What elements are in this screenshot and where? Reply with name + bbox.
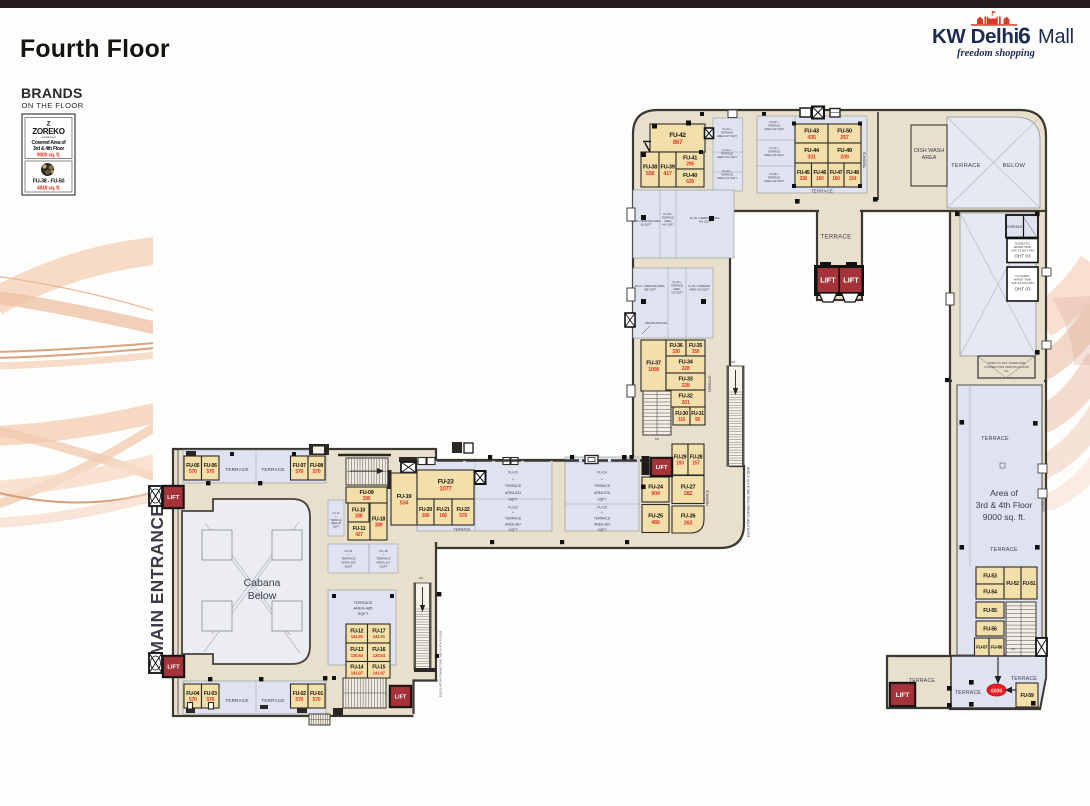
svg-text:570: 570 bbox=[189, 469, 197, 475]
svg-text:FU-41 +: FU-41 + bbox=[722, 148, 732, 152]
svg-text:331: 331 bbox=[807, 155, 816, 161]
svg-text:FU-43: FU-43 bbox=[804, 128, 820, 134]
svg-text:FU-45: FU-45 bbox=[797, 170, 810, 176]
svg-text:ZOREKO: ZOREKO bbox=[32, 127, 65, 136]
svg-text:188: 188 bbox=[355, 514, 363, 520]
svg-text:904: 904 bbox=[651, 491, 661, 497]
svg-text:FU-40: FU-40 bbox=[683, 173, 697, 179]
svg-text:FU-44: FU-44 bbox=[804, 148, 820, 154]
svg-text:LIFT: LIFT bbox=[656, 465, 668, 471]
svg-text:Cabana: Cabana bbox=[244, 577, 281, 589]
svg-text:DN: DN bbox=[419, 576, 423, 580]
svg-text:AREA-367: AREA-367 bbox=[505, 522, 521, 526]
svg-text:558: 558 bbox=[646, 171, 655, 177]
svg-text:TERRACE: TERRACE bbox=[863, 151, 867, 168]
svg-text:FU-29: FU-29 bbox=[674, 454, 687, 460]
svg-text:FU-42: FU-42 bbox=[669, 132, 686, 139]
svg-text:6006: 6006 bbox=[991, 688, 1002, 694]
svg-text:TERRACE: TERRACE bbox=[811, 189, 833, 194]
svg-text:9000 sq. ft.: 9000 sq. ft. bbox=[983, 512, 1026, 522]
svg-text:FU-07: FU-07 bbox=[293, 463, 306, 469]
svg-text:4818 sq. ft.: 4818 sq. ft. bbox=[37, 186, 61, 192]
svg-text:TERRACE: TERRACE bbox=[594, 484, 611, 488]
svg-text:TERRACE: TERRACE bbox=[721, 173, 734, 177]
svg-text:FU-04: FU-04 bbox=[186, 691, 199, 697]
svg-text:DISH WASH: DISH WASH bbox=[914, 148, 944, 154]
svg-text:FU-54: FU-54 bbox=[983, 590, 997, 596]
svg-text:TERRACE: TERRACE bbox=[261, 467, 284, 472]
svg-text:9000 sq. ft.: 9000 sq. ft. bbox=[37, 153, 61, 159]
svg-text:867: 867 bbox=[673, 139, 683, 146]
svg-text:3rd & 4th Floor: 3rd & 4th Floor bbox=[33, 146, 64, 152]
svg-text:358 SQFT: 358 SQFT bbox=[644, 288, 656, 292]
svg-text:ABOVE PROFILE: ABOVE PROFILE bbox=[645, 321, 668, 325]
svg-text:FU-44 +: FU-44 + bbox=[769, 146, 779, 150]
svg-text:TERRACE: TERRACE bbox=[821, 235, 852, 241]
svg-text:166: 166 bbox=[439, 513, 447, 519]
svg-text:FU-03: FU-03 bbox=[204, 691, 217, 697]
svg-text:FU-24: FU-24 bbox=[597, 471, 607, 475]
svg-text:TERRACE: TERRACE bbox=[1006, 225, 1023, 229]
svg-text:296: 296 bbox=[363, 496, 371, 502]
svg-text:FU-06: FU-06 bbox=[204, 463, 217, 469]
svg-text:570: 570 bbox=[313, 697, 321, 703]
svg-text:TERRACE: TERRACE bbox=[708, 375, 712, 393]
svg-text:AREA-264: AREA-264 bbox=[594, 522, 610, 526]
svg-text:FU-40 +: FU-40 + bbox=[722, 169, 732, 173]
svg-text:141.97: 141.97 bbox=[351, 670, 364, 675]
svg-text:441 SQFT: 441 SQFT bbox=[662, 224, 674, 227]
svg-text:228: 228 bbox=[681, 366, 689, 372]
svg-text:Fourth Floor: Fourth Floor bbox=[20, 36, 170, 63]
svg-text:FU-33: FU-33 bbox=[678, 376, 692, 382]
svg-text:FU-57: FU-57 bbox=[976, 645, 988, 650]
svg-text:TERRACE: TERRACE bbox=[225, 698, 248, 703]
svg-text:LIFT: LIFT bbox=[167, 665, 180, 671]
svg-text:116: 116 bbox=[678, 417, 686, 423]
svg-text:228: 228 bbox=[681, 383, 689, 389]
svg-text:LIFT: LIFT bbox=[820, 276, 836, 285]
svg-text:TERRACE: TERRACE bbox=[453, 528, 471, 532]
svg-text:570: 570 bbox=[313, 469, 321, 475]
svg-text:LIFT: LIFT bbox=[843, 276, 859, 285]
svg-text:201: 201 bbox=[681, 400, 689, 406]
svg-text:TERRACE: TERRACE bbox=[261, 698, 284, 703]
svg-text:166: 166 bbox=[422, 513, 430, 519]
svg-text:SQFT: SQFT bbox=[345, 564, 353, 568]
svg-text:FU-38 - FU-50: FU-38 - FU-50 bbox=[33, 179, 65, 185]
svg-text:ON THE FLOOR: ON THE FLOOR bbox=[22, 101, 84, 110]
svg-text:FU-40 +TERRACE AREA-: FU-40 +TERRACE AREA- bbox=[690, 216, 720, 220]
svg-text:570: 570 bbox=[295, 697, 303, 703]
svg-text:FU-35 +TERRACE: FU-35 +TERRACE bbox=[688, 284, 710, 288]
svg-text:TERRACE: TERRACE bbox=[353, 600, 372, 605]
svg-text:FU-41: FU-41 bbox=[683, 155, 697, 161]
svg-text:FU-43 +: FU-43 + bbox=[769, 120, 779, 124]
svg-text:FU-34: FU-34 bbox=[678, 359, 693, 365]
svg-text:141.91: 141.91 bbox=[351, 634, 364, 639]
svg-text:FU-32: FU-32 bbox=[678, 393, 692, 399]
svg-text:154: 154 bbox=[849, 176, 857, 182]
svg-text:entertainment: entertainment bbox=[41, 136, 56, 139]
svg-text:157: 157 bbox=[692, 461, 700, 467]
svg-text:FU-22: FU-22 bbox=[508, 506, 518, 510]
svg-text:FU-10: FU-10 bbox=[352, 507, 365, 513]
svg-text:3rd & 4th Floor: 3rd & 4th Floor bbox=[976, 500, 1033, 510]
svg-text:Area of: Area of bbox=[990, 488, 1018, 498]
svg-text:TERRACE: TERRACE bbox=[505, 517, 522, 521]
svg-text:130.54: 130.54 bbox=[351, 653, 364, 658]
svg-text:TERRACE: TERRACE bbox=[768, 150, 781, 154]
svg-text:FU-23: FU-23 bbox=[438, 478, 455, 485]
svg-text:570: 570 bbox=[206, 469, 214, 475]
svg-text:FU-24: FU-24 bbox=[648, 484, 664, 490]
svg-text:427: 427 bbox=[355, 532, 363, 538]
svg-text:160: 160 bbox=[816, 176, 824, 182]
svg-text:FU-37: FU-37 bbox=[646, 360, 661, 366]
svg-text:LIFT: LIFT bbox=[167, 495, 180, 501]
svg-text:257: 257 bbox=[840, 135, 849, 141]
svg-text:LVL: LVL bbox=[1004, 369, 1009, 373]
svg-text:AREA-576: AREA-576 bbox=[594, 491, 610, 495]
svg-text:193: 193 bbox=[676, 461, 684, 467]
svg-text:FU-52: FU-52 bbox=[1006, 581, 1019, 587]
svg-text:336: 336 bbox=[800, 176, 808, 182]
svg-text:FU-18: FU-18 bbox=[372, 516, 385, 522]
svg-text:AREA-447 SQFT: AREA-447 SQFT bbox=[717, 134, 737, 138]
svg-text:OHT 03: OHT 03 bbox=[1015, 287, 1031, 292]
svg-text:FU-08: FU-08 bbox=[310, 463, 323, 469]
svg-text:330: 330 bbox=[672, 349, 680, 355]
svg-text:AREA-223 SQFT: AREA-223 SQFT bbox=[764, 127, 784, 131]
svg-text:Below: Below bbox=[248, 590, 277, 602]
svg-text:FU-37 +TERRACE AREA-: FU-37 +TERRACE AREA- bbox=[635, 284, 665, 288]
svg-text:AREA-485: AREA-485 bbox=[354, 606, 374, 611]
svg-text:AREA-533: AREA-533 bbox=[505, 491, 521, 495]
svg-text:FU-09: FU-09 bbox=[359, 490, 373, 496]
svg-text:FU-27: FU-27 bbox=[681, 484, 696, 490]
svg-text:FU-50: FU-50 bbox=[837, 128, 852, 134]
svg-text:130.54: 130.54 bbox=[373, 653, 386, 658]
svg-text:FU-48: FU-48 bbox=[846, 170, 859, 176]
svg-text:+: + bbox=[512, 477, 514, 481]
svg-text:FU-31: FU-31 bbox=[691, 411, 704, 417]
svg-text:DN: DN bbox=[731, 360, 735, 364]
svg-text:AREA-133 SQFT: AREA-133 SQFT bbox=[764, 179, 784, 183]
svg-text:TERRACE: TERRACE bbox=[594, 517, 611, 521]
svg-text:TERRACE: TERRACE bbox=[1011, 676, 1038, 682]
svg-text:FU-05: FU-05 bbox=[186, 463, 199, 469]
svg-text:FU-47: FU-47 bbox=[830, 170, 843, 176]
svg-text:+: + bbox=[601, 477, 603, 481]
svg-text:BRANDS: BRANDS bbox=[21, 85, 83, 101]
svg-text:Mall: Mall bbox=[1038, 26, 1074, 48]
svg-text:417: 417 bbox=[663, 171, 672, 177]
svg-text:FU-51: FU-51 bbox=[1023, 581, 1036, 587]
svg-text:141.97: 141.97 bbox=[373, 670, 386, 675]
svg-text:LIFT: LIFT bbox=[395, 694, 407, 700]
svg-text:FU-53: FU-53 bbox=[983, 574, 997, 580]
svg-text:FU-28: FU-28 bbox=[690, 454, 703, 460]
svg-text:AREA-219 SQFT: AREA-219 SQFT bbox=[689, 288, 709, 292]
svg-text:BELOW: BELOW bbox=[1003, 163, 1026, 169]
svg-text:SQFT: SQFT bbox=[333, 526, 340, 529]
svg-text:1008: 1008 bbox=[648, 367, 659, 373]
svg-text:359: 359 bbox=[692, 349, 700, 355]
svg-text:FU-59: FU-59 bbox=[1021, 693, 1034, 699]
svg-text:TERRACE: TERRACE bbox=[955, 690, 982, 696]
svg-text:FU-36: FU-36 bbox=[670, 343, 683, 349]
svg-text:DN: DN bbox=[655, 437, 659, 441]
svg-text:CAP.-20,000 LTRS: CAP.-20,000 LTRS bbox=[1011, 281, 1035, 285]
svg-text:FU-35: FU-35 bbox=[689, 343, 702, 349]
svg-text:FU-38: FU-38 bbox=[643, 164, 657, 170]
svg-text:FU-56: FU-56 bbox=[983, 627, 997, 633]
svg-text:DN: DN bbox=[1011, 647, 1015, 651]
svg-text:FU-11: FU-11 bbox=[353, 526, 366, 532]
svg-text:SQFT: SQFT bbox=[380, 564, 388, 568]
svg-text:ESCALATOR CONNECTING 3RD & 4TH: ESCALATOR CONNECTING 3RD & 4TH FLOOR bbox=[747, 466, 751, 537]
svg-text:263: 263 bbox=[684, 521, 693, 527]
svg-text:SQFT: SQFT bbox=[508, 528, 517, 532]
svg-text:TERRACE: TERRACE bbox=[721, 152, 734, 156]
svg-text:FU-49: FU-49 bbox=[837, 148, 853, 154]
svg-text:65 SQFT: 65 SQFT bbox=[641, 223, 652, 227]
svg-text:FU-01: FU-01 bbox=[310, 691, 323, 697]
svg-text:TERRACE: TERRACE bbox=[1042, 497, 1046, 512]
svg-text:OHT 03: OHT 03 bbox=[1015, 254, 1031, 259]
svg-text:6: 6 bbox=[1018, 23, 1031, 49]
svg-text:SQFT: SQFT bbox=[597, 528, 606, 532]
svg-text:141.91: 141.91 bbox=[373, 634, 386, 639]
svg-text:FU-23: FU-23 bbox=[508, 471, 518, 475]
svg-text:220 SQFT: 220 SQFT bbox=[671, 292, 683, 295]
svg-text:FU-02: FU-02 bbox=[293, 691, 306, 697]
svg-text:1077: 1077 bbox=[439, 487, 452, 493]
svg-text:FU-39: FU-39 bbox=[660, 164, 674, 170]
svg-text:FU-19: FU-19 bbox=[397, 494, 413, 500]
svg-text:TERRACE: TERRACE bbox=[768, 176, 781, 180]
svg-text:FU-22: FU-22 bbox=[457, 507, 470, 513]
svg-text:FU-20: FU-20 bbox=[419, 507, 432, 513]
svg-text:FU-46: FU-46 bbox=[814, 170, 827, 176]
svg-text:CAP.-15,000 LTRS: CAP.-15,000 LTRS bbox=[1011, 249, 1035, 253]
svg-text:FU-42 +: FU-42 + bbox=[722, 127, 732, 131]
svg-text:AREA-133 SQFT: AREA-133 SQFT bbox=[764, 153, 784, 157]
svg-text:AREA: AREA bbox=[922, 155, 937, 161]
svg-text:534: 534 bbox=[400, 501, 410, 507]
svg-text:TERRACE: TERRACE bbox=[505, 484, 522, 488]
svg-text:570: 570 bbox=[295, 469, 303, 475]
svg-text:FU-26: FU-26 bbox=[681, 514, 697, 520]
svg-text:TERRACE: TERRACE bbox=[768, 124, 781, 128]
svg-text:AREA-131 SQFT: AREA-131 SQFT bbox=[717, 155, 737, 159]
svg-text:209: 209 bbox=[840, 155, 849, 161]
svg-text:TERRACE: TERRACE bbox=[981, 436, 1009, 442]
svg-text:SQFT: SQFT bbox=[358, 611, 369, 616]
svg-text:579: 579 bbox=[459, 513, 467, 519]
svg-text:FU-55: FU-55 bbox=[983, 608, 997, 614]
svg-text:389: 389 bbox=[375, 523, 383, 529]
svg-text:AREA-121 SQFT: AREA-121 SQFT bbox=[717, 176, 737, 180]
svg-text:MAIN ENTRANCE: MAIN ENTRANCE bbox=[147, 505, 167, 656]
svg-text:466: 466 bbox=[651, 520, 660, 526]
svg-text:freedom shopping: freedom shopping bbox=[957, 48, 1035, 59]
svg-text:FU-58: FU-58 bbox=[991, 645, 1003, 650]
svg-text:95: 95 bbox=[695, 417, 700, 423]
svg-text:ESCALATOR CONNECTING 3RD & 4TH: ESCALATOR CONNECTING 3RD & 4TH FLOOR bbox=[439, 630, 443, 697]
svg-text:+: + bbox=[601, 511, 603, 515]
svg-text:TERRACE: TERRACE bbox=[721, 131, 734, 135]
svg-text:+: + bbox=[512, 511, 514, 515]
svg-text:SQFT: SQFT bbox=[597, 498, 606, 502]
svg-text:LIFT: LIFT bbox=[896, 692, 910, 699]
svg-text:KW Delhi: KW Delhi bbox=[932, 25, 1019, 48]
svg-text:TERRACE: TERRACE bbox=[951, 163, 981, 169]
svg-text:TERRACE: TERRACE bbox=[225, 467, 248, 472]
svg-text:282: 282 bbox=[684, 491, 693, 497]
svg-text:FU-30: FU-30 bbox=[675, 411, 688, 417]
svg-text:295: 295 bbox=[686, 162, 694, 168]
svg-text:160: 160 bbox=[832, 176, 840, 182]
svg-text:SQFT: SQFT bbox=[508, 498, 517, 502]
svg-text:639: 639 bbox=[686, 179, 694, 185]
svg-text:TERRACE: TERRACE bbox=[990, 547, 1018, 553]
svg-text:FU-21: FU-21 bbox=[437, 507, 450, 513]
svg-text:FU-25: FU-25 bbox=[648, 513, 664, 519]
svg-text:TERRACE: TERRACE bbox=[706, 489, 710, 506]
svg-text:FU-25: FU-25 bbox=[597, 506, 607, 510]
svg-text:FU-45 +: FU-45 + bbox=[769, 172, 779, 176]
svg-text:435: 435 bbox=[807, 135, 816, 141]
